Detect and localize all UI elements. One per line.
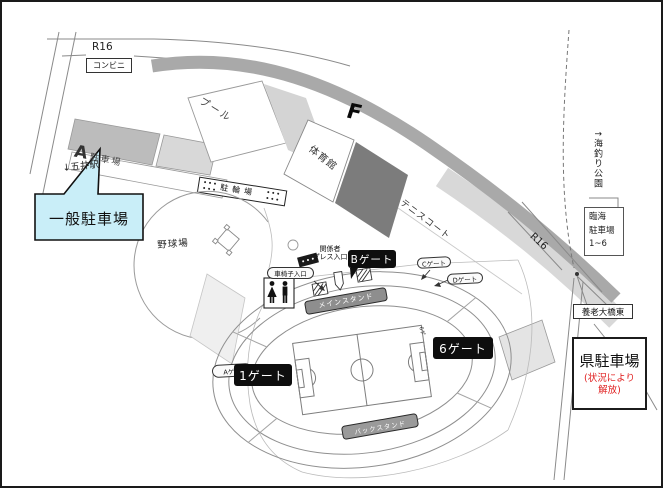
yoro-bridge-east-label: 養老大橋東	[573, 304, 633, 319]
stadium-area-map: R16 コンビニ ↓五井駅 A駐車場 一般駐車場 プール 体育館 F テニスコー…	[0, 0, 663, 488]
rinkai-parking-label: 臨海 駐車場 1~6	[584, 207, 624, 256]
wheelchair-entrance-label: 車椅子入口	[267, 267, 314, 279]
prefectural-parking-title: 県駐車場	[579, 350, 639, 371]
fishing-park-label: ↑海釣り公園	[591, 130, 604, 200]
a-parking-letter: A	[73, 142, 90, 164]
gate-b-label: Bゲート	[348, 250, 396, 268]
restroom-icon	[264, 278, 294, 308]
road-coastal-dashed	[563, 30, 574, 268]
prefectural-parking-note: (状況により 解放)	[584, 373, 635, 398]
prefectural-parking-box: 県駐車場 (状況により 解放)	[572, 337, 647, 410]
r16-top-label: R16	[92, 41, 113, 54]
gate-6-label: 6ゲート	[433, 337, 493, 359]
tree-circle	[288, 240, 298, 250]
plaza-area	[190, 274, 245, 364]
soccer-pitch	[293, 325, 432, 414]
gate-c-label: Cゲート	[417, 256, 452, 269]
press-entrance-label: 関係者 プレス入口	[308, 245, 352, 262]
c-gate-pointer	[421, 270, 430, 280]
general-parking-label: 一般駐車場	[35, 198, 143, 238]
gate-d-label: Dゲート	[447, 272, 484, 285]
gate-1-label: 1ゲート	[234, 364, 292, 386]
baseball-label: 野球場	[157, 238, 189, 252]
junction-dot	[575, 272, 579, 276]
conbini-label: コンビニ	[86, 58, 132, 73]
